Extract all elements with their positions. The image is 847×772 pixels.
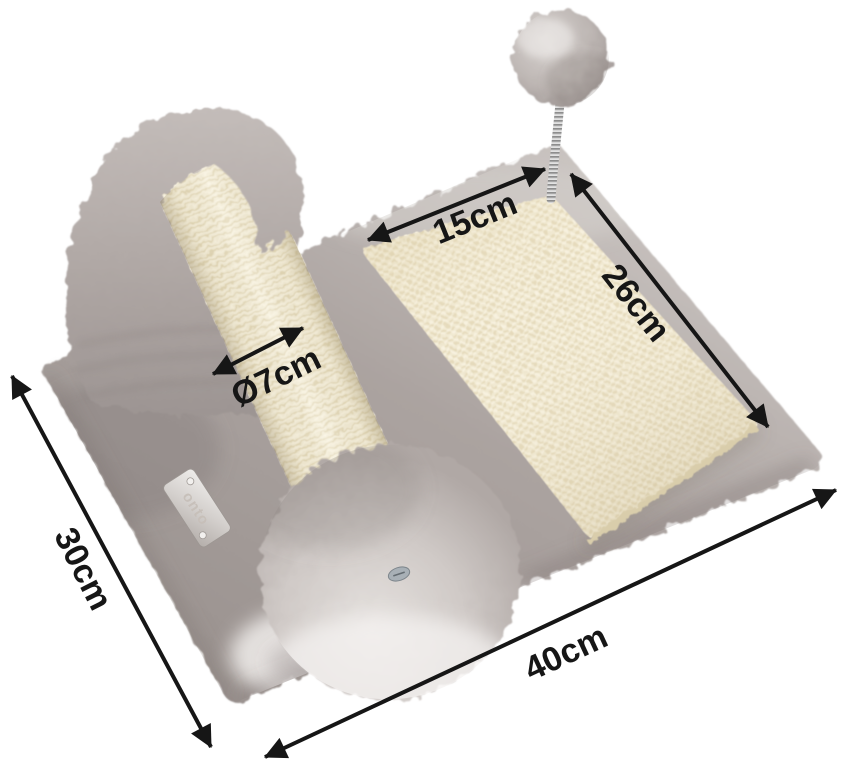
dimension-label-base-depth: 30cm [46,522,119,617]
product-image: onto 15cm 26cm Ø7cm 30cm 40c [0,0,847,772]
ball-shading [545,52,625,112]
dimension-label-base-width: 40cm [519,617,614,688]
ball-highlight [517,18,573,58]
cat-scratcher-photo: onto 15cm 26cm Ø7cm 30cm 40c [0,0,847,772]
